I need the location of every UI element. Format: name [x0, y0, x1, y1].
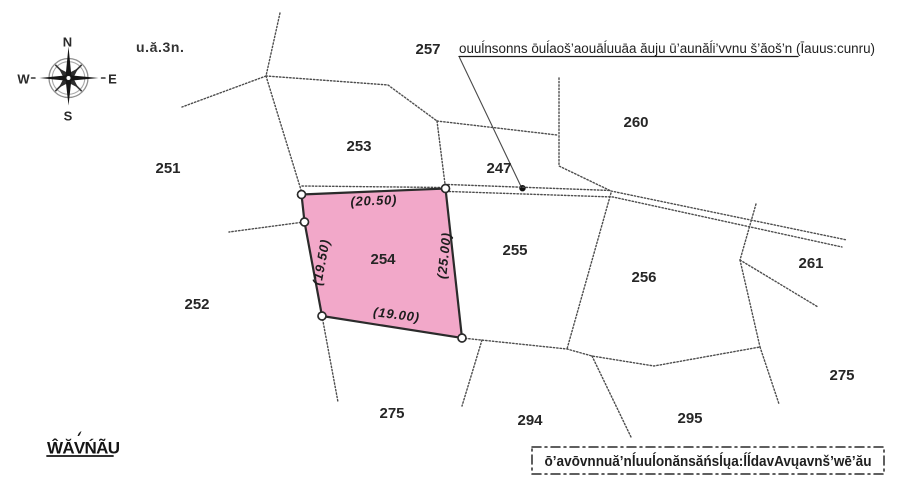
svg-text:294: 294 — [517, 412, 543, 429]
svg-text:261: 261 — [798, 255, 823, 272]
svg-text:ō’avōvnnuă’nĺuuĺonănsăńsĺųa:ĺĺ: ō’avōvnnuă’nĺuuĺonănsăńsĺųa:ĺĺdavAvųavnš… — [545, 452, 872, 470]
svg-text:S: S — [64, 109, 73, 124]
svg-text:(20.50): (20.50) — [350, 192, 397, 209]
svg-text:u.ă.3n.: u.ă.3n. — [136, 39, 185, 55]
svg-text:254: 254 — [370, 251, 396, 268]
svg-text:255: 255 — [502, 242, 527, 259]
svg-text:247: 247 — [486, 160, 511, 177]
svg-text:ŴĂVŃÃU: ŴĂVŃÃU — [47, 438, 120, 458]
svg-text:260: 260 — [623, 114, 648, 131]
svg-text:295: 295 — [677, 410, 702, 427]
svg-text:256: 256 — [631, 269, 656, 286]
svg-text:253: 253 — [346, 138, 371, 155]
svg-text:ouuĺnsonns ōuĺaoš’aouāĺuuāa ă: ouuĺnsonns ōuĺaoš’aouāĺuuāa ăuju ū’aunăĺ… — [459, 41, 875, 56]
svg-text:W: W — [17, 72, 30, 87]
svg-text:257: 257 — [415, 41, 440, 58]
svg-text:N: N — [63, 35, 72, 50]
svg-text:275: 275 — [829, 367, 854, 384]
svg-text:251: 251 — [155, 160, 180, 177]
svg-text:E: E — [108, 72, 117, 87]
svg-text:275: 275 — [379, 405, 404, 422]
svg-text:252: 252 — [184, 296, 209, 313]
